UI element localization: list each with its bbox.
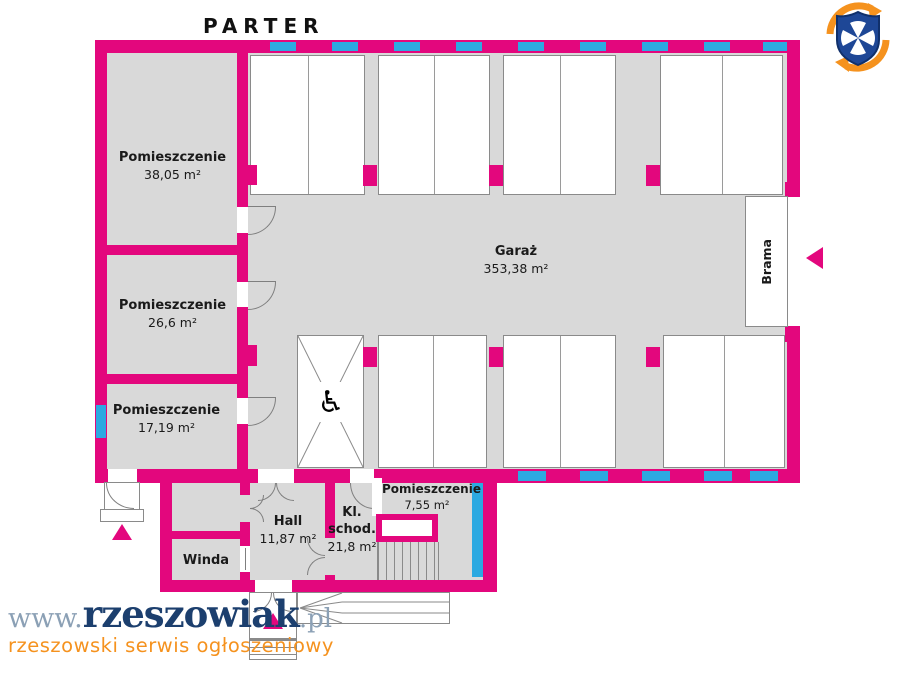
door-leaf — [248, 397, 276, 398]
window-bottom-5 — [750, 471, 778, 481]
pillar — [363, 165, 377, 186]
pillar — [489, 165, 503, 186]
stall-divider — [434, 56, 435, 194]
window-top-4 — [456, 42, 482, 51]
door-opening — [258, 469, 294, 483]
stall-divider — [560, 336, 561, 467]
window-top-9 — [763, 42, 787, 51]
room-label-755: Pomieszczenie 7,55 m² — [382, 482, 472, 513]
gate-label: Brama — [759, 239, 774, 285]
door-leaf — [248, 206, 276, 207]
parking-stall-group — [660, 55, 783, 195]
entrance-arrow-gate — [806, 247, 823, 269]
window-top-5 — [518, 42, 544, 51]
door-opening — [237, 282, 248, 307]
gate-brama: Brama — [745, 196, 788, 327]
pillar — [646, 347, 660, 367]
watermark: www.rzeszowiak.pl rzeszowski serwis ogło… — [8, 592, 334, 657]
parking-stall-group — [503, 55, 616, 195]
door-opening — [237, 207, 248, 233]
gate-cap-top — [785, 182, 800, 197]
window-bottom-2 — [580, 471, 608, 481]
winda-label: Winda — [172, 553, 240, 570]
wall-annex-right — [483, 473, 497, 592]
staircase-label: Kl. schod. 21,8 m² — [318, 505, 386, 555]
parking-stall-group — [663, 335, 785, 468]
window-bottom-3 — [642, 471, 670, 481]
watermark-tld: .pl — [299, 604, 332, 634]
room-label-38: Pomieszczenie 38,05 m² — [110, 150, 235, 183]
wall-hall-left-c — [240, 572, 250, 592]
stall-divider — [724, 336, 725, 467]
wall-hall-left-a — [240, 473, 250, 495]
entry-steps — [100, 509, 144, 522]
pillar — [248, 345, 257, 366]
parking-stall-group — [378, 55, 490, 195]
stall-divider — [560, 56, 561, 194]
pillar — [646, 165, 660, 186]
window-top-3 — [394, 42, 420, 51]
window-top-7 — [642, 42, 668, 51]
wall-right-upper — [787, 40, 800, 196]
entrance-arrow-left — [112, 524, 132, 540]
parking-stall-group — [378, 335, 487, 468]
page-title: PARTER — [203, 14, 325, 38]
door-opening — [350, 469, 374, 483]
gate-cap-bottom — [785, 326, 800, 342]
watermark-tagline: rzeszowski serwis ogłoszeniowy — [8, 634, 334, 657]
hall-label: Hall 11,87 m² — [250, 514, 326, 547]
elevator-door-line — [245, 548, 246, 570]
wall-divider-1 — [95, 245, 248, 255]
pillar — [248, 165, 257, 185]
garage-label: Garaż 353,38 m² — [430, 244, 602, 277]
floor-plan-page: PARTER ♿ — [0, 0, 900, 675]
room-label-17: Pomieszczenie 17,19 m² — [104, 403, 229, 436]
wall-right-lower — [787, 327, 800, 483]
window-top-1 — [270, 42, 296, 51]
window-bottom-4 — [704, 471, 732, 481]
door-opening — [108, 469, 137, 483]
watermark-url: www.rzeszowiak.pl — [8, 592, 334, 636]
wall-divider-2 — [95, 374, 248, 384]
wheelchair-icon: ♿ — [312, 382, 350, 422]
window-top-2 — [332, 42, 358, 51]
parking-stall-group — [250, 55, 365, 195]
pillar — [489, 347, 503, 367]
watermark-brand: rzeszowiak — [83, 592, 299, 636]
wall-top — [95, 40, 800, 53]
disabled-parking-stall: ♿ — [297, 335, 364, 468]
parking-stall-group — [503, 335, 616, 468]
stair-treads — [377, 542, 439, 580]
door-leaf — [248, 281, 276, 282]
pillar — [363, 347, 377, 367]
room-label-26: Pomieszczenie 26,6 m² — [110, 298, 235, 331]
watermark-www: www. — [8, 603, 83, 634]
wall-hall-left-b — [240, 522, 250, 546]
stall-divider — [722, 56, 723, 194]
window-top-6 — [580, 42, 606, 51]
window-bottom-1 — [518, 471, 546, 481]
wall-garage-bottom — [95, 469, 800, 483]
rzeszow-crest-logo — [822, 2, 894, 74]
stall-divider — [433, 336, 434, 467]
window-top-8 — [704, 42, 730, 51]
door-opening — [237, 398, 248, 424]
stall-divider — [308, 56, 309, 194]
window-annex-right — [472, 483, 483, 577]
wall-winda-divider — [160, 531, 250, 539]
